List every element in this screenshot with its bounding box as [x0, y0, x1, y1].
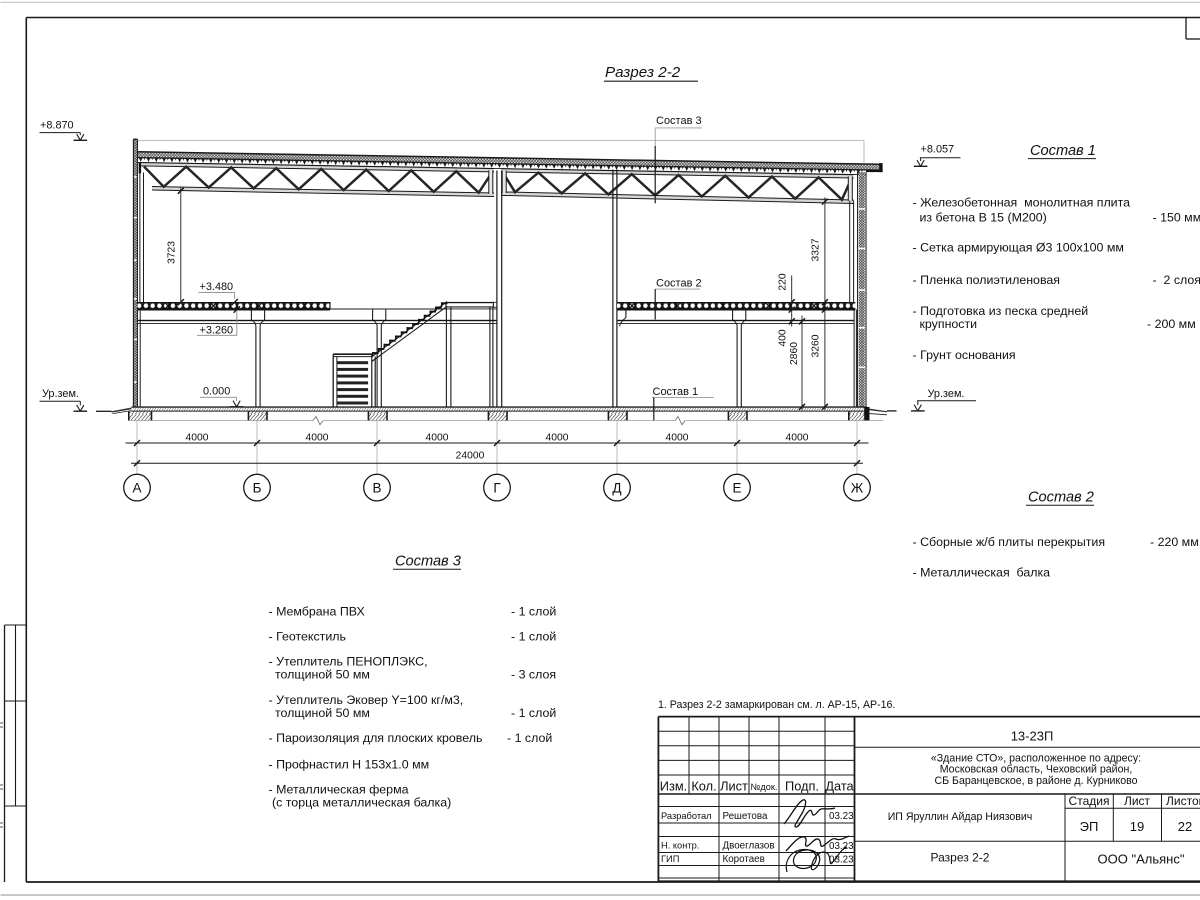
svg-text:Ж: Ж [851, 480, 864, 495]
svg-text:3327: 3327 [811, 238, 822, 261]
svg-text:А: А [132, 480, 141, 495]
svg-text:- 200 мм: - 200 мм [1147, 317, 1196, 331]
svg-text:3723: 3723 [167, 241, 178, 264]
svg-text:4000: 4000 [426, 432, 449, 443]
svg-text:22: 22 [1178, 819, 1192, 834]
svg-text:Состав 3: Состав 3 [395, 554, 461, 570]
svg-text:- Мембрана ПВХ: - Мембрана ПВХ [269, 605, 365, 619]
svg-text:Е: Е [732, 480, 741, 495]
svg-text:из бетона В 15 (М200): из бетона В 15 (М200) [920, 211, 1047, 225]
svg-text:Московская область, Чеховский: Московская область, Чеховский район, [940, 764, 1133, 776]
svg-text:СБ Баранцевское, в районе д. К: СБ Баранцевское, в районе д. Курниково [934, 775, 1137, 787]
svg-text:ИП Яруллин Айдар Ниязович: ИП Яруллин Айдар Ниязович [888, 811, 1033, 823]
svg-text:- Грунт основания: - Грунт основания [913, 348, 1016, 362]
svg-text:Коротаев: Коротаев [723, 854, 765, 865]
svg-text:4000: 4000 [546, 432, 569, 443]
svg-text:+8.057: +8.057 [921, 143, 955, 155]
svg-text:Разрез 2-2: Разрез 2-2 [605, 64, 681, 81]
svg-text:4000: 4000 [786, 432, 809, 443]
svg-text:13-23П: 13-23П [1011, 729, 1054, 744]
svg-text:- 3 слоя: - 3 слоя [511, 668, 556, 682]
svg-text:1. Разрез 2-2 замаркирован см.: 1. Разрез 2-2 замаркирован см. л. АР-15,… [658, 699, 895, 711]
svg-text:- Сетка армирующая Ø3 100х100: - Сетка армирующая Ø3 100х100 мм [913, 241, 1124, 255]
svg-text:Кол.: Кол. [691, 778, 716, 793]
svg-text:- Металлическая балка: - Металлическая балка [913, 566, 1051, 580]
svg-text:400: 400 [777, 329, 788, 346]
svg-text:19: 19 [1130, 819, 1144, 834]
svg-text:- Утеплитель Эковер Y=100 кг/м: - Утеплитель Эковер Y=100 кг/м3, [269, 693, 464, 707]
svg-text:- Утеплитель ПЕНОПЛЭКС,: - Утеплитель ПЕНОПЛЭКС, [269, 655, 428, 669]
svg-text:ГИП: ГИП [661, 854, 679, 864]
svg-text:- 150 мм: - 150 мм [1153, 211, 1200, 225]
svg-text:Дата: Дата [825, 778, 854, 793]
svg-text:Состав 2: Состав 2 [656, 277, 702, 289]
svg-text:Разработал: Разработал [661, 811, 712, 821]
svg-text:4000: 4000 [186, 432, 209, 443]
svg-text:Лист: Лист [720, 778, 748, 793]
svg-text:- Сборные ж/б плиты перекрытия: - Сборные ж/б плиты перекрытия [913, 535, 1106, 549]
svg-text:толщиной 50 мм: толщиной 50 мм [275, 706, 370, 720]
svg-text:- 1 слой: - 1 слой [511, 706, 556, 720]
svg-text:0.000: 0.000 [203, 385, 230, 397]
svg-text:4000: 4000 [306, 432, 329, 443]
svg-text:толщиной 50 мм: толщиной 50 мм [275, 668, 370, 682]
svg-text:Состав 3: Состав 3 [656, 115, 702, 127]
svg-text:Разрез 2-2: Разрез 2-2 [931, 851, 990, 865]
svg-text:- Железобетонная монолитная п: - Железобетонная монолитная плита [913, 196, 1131, 210]
svg-text:Г: Г [493, 480, 501, 495]
svg-text:+3.480: +3.480 [200, 281, 234, 293]
svg-text:- Пленка полиэтиленовая: - Пленка полиэтиленовая [913, 273, 1061, 287]
svg-text:Листов: Листов [1166, 794, 1200, 808]
svg-text:Д: Д [612, 480, 621, 495]
svg-text:- 220 мм: - 220 мм [1150, 535, 1199, 549]
svg-text:03.23: 03.23 [829, 854, 854, 865]
svg-text:- Металлическая ферма: - Металлическая ферма [269, 783, 409, 797]
svg-text:- Подготовка из песка средней: - Подготовка из песка средней [913, 304, 1089, 318]
svg-text:4000: 4000 [666, 432, 689, 443]
svg-text:ЭП: ЭП [1080, 819, 1099, 834]
svg-text:Стадия: Стадия [1069, 794, 1110, 808]
svg-text:(с торца металлическая балка): (с торца металлическая балка) [272, 796, 451, 810]
svg-text:2860: 2860 [789, 342, 800, 365]
svg-text:«Здание СТО», расположенное по: «Здание СТО», расположенное по адресу: [931, 753, 1141, 765]
svg-text:24000: 24000 [456, 451, 485, 462]
svg-text:ООО "Альянс": ООО "Альянс" [1098, 851, 1185, 866]
svg-text:Состав 1: Состав 1 [653, 386, 699, 398]
svg-text:Двоеглазов: Двоеглазов [723, 840, 775, 851]
svg-text:крупности: крупности [920, 317, 978, 331]
svg-text:Ур.зем.: Ур.зем. [42, 388, 79, 400]
svg-text:220: 220 [777, 273, 788, 290]
svg-text:Н. контр.: Н. контр. [661, 840, 699, 850]
svg-text:- 1 слой: - 1 слой [507, 731, 552, 745]
svg-text:- Геотекстиль: - Геотекстиль [269, 630, 346, 644]
svg-text:+3.260: +3.260 [200, 325, 234, 337]
svg-text:3260: 3260 [811, 334, 822, 357]
svg-text:- Профнастил Н 153х1.0 мм: - Профнастил Н 153х1.0 мм [269, 758, 430, 772]
svg-text:- Пароизоляция для плоских кро: - Пароизоляция для плоских кровель [269, 731, 483, 745]
svg-text:- 2 слоя: - 2 слоя [1153, 273, 1200, 287]
svg-text:- 1 слой: - 1 слой [511, 630, 556, 644]
svg-text:+8.870: +8.870 [40, 120, 74, 132]
svg-text:Решетова: Решетова [723, 811, 768, 822]
svg-text:Б: Б [253, 480, 262, 495]
svg-text:В: В [372, 480, 381, 495]
svg-text:03.23: 03.23 [829, 811, 854, 822]
svg-text:Подп.: Подп. [785, 778, 819, 793]
svg-text:- 1 слой: - 1 слой [511, 605, 556, 619]
svg-text:№док.: №док. [751, 782, 778, 792]
svg-text:Ур.зем.: Ур.зем. [928, 388, 965, 400]
svg-text:Состав 1: Состав 1 [1030, 143, 1096, 159]
svg-text:Лист: Лист [1124, 794, 1151, 808]
svg-text:Состав 2: Состав 2 [1028, 490, 1094, 506]
svg-text:Изм.: Изм. [660, 778, 687, 793]
